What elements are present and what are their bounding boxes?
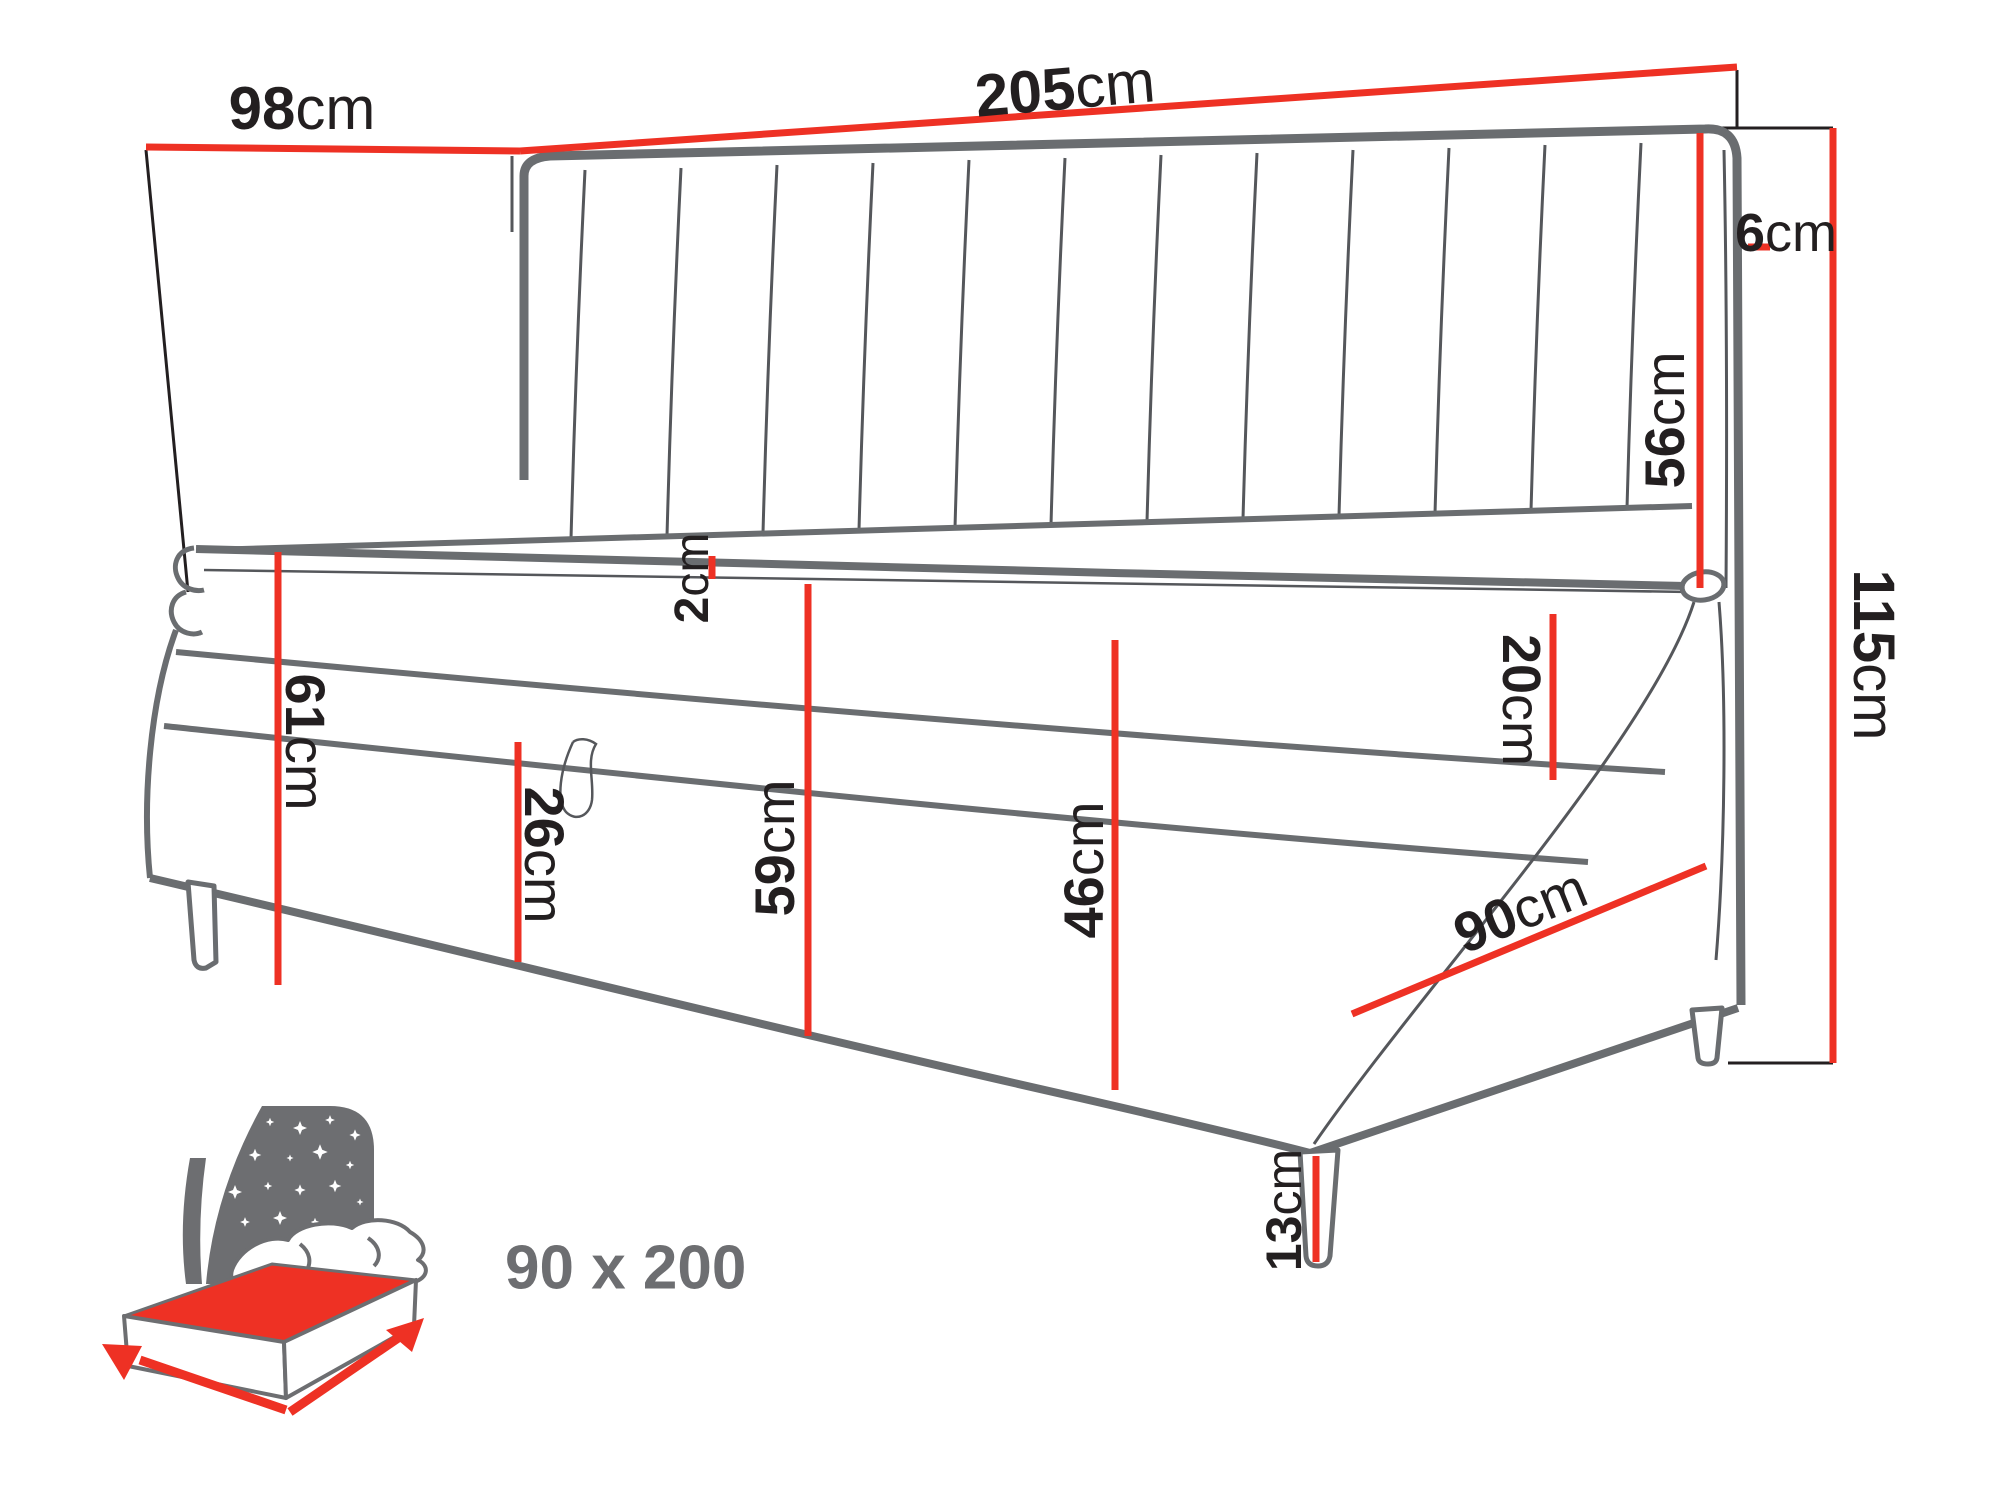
wall-edge-line <box>146 150 188 592</box>
dim-13-label: 13cm <box>1256 1149 1312 1271</box>
left-piping-bump-1 <box>175 548 204 591</box>
side-bottom-edge <box>1310 1008 1738 1153</box>
left-piping-bump-2 <box>171 592 202 634</box>
dim-20-label: 20cm <box>1491 634 1551 766</box>
rear-right-leg <box>1692 1008 1722 1064</box>
headboard-panel-seams <box>571 143 1641 539</box>
dim-98-line <box>146 147 520 151</box>
dim-56-label: 56cm <box>1633 352 1696 489</box>
dim-6-label: 6cm <box>1735 203 1837 263</box>
headboard-inner-edge <box>1724 150 1727 588</box>
bed-dimension-diagram: 98cm 205cm 6cm 56cm 115cm 2cm 61cm 26cm … <box>0 0 2000 1500</box>
left-end-edge <box>147 630 176 878</box>
dim-98-label: 98cm <box>229 75 376 142</box>
storage-lid-seam <box>164 726 1588 862</box>
size-caption: 90 x 200 <box>505 1234 746 1303</box>
seat-back-line <box>208 506 1692 550</box>
front-left-leg <box>188 882 216 968</box>
dimension-lines <box>146 67 1833 1262</box>
dim-59-label: 59cm <box>743 780 806 917</box>
dim-2-label: 2cm <box>666 533 719 624</box>
night-sky-sliver <box>183 1158 206 1284</box>
bed-size-icon: 90 x 200 <box>102 1106 746 1412</box>
dim-46-label: 46cm <box>1052 802 1115 939</box>
dim-90-label: 90cm <box>1445 855 1596 965</box>
mattress-bottom-seam <box>176 652 1665 772</box>
dimension-labels: 98cm 205cm 6cm 56cm 115cm 2cm 61cm 26cm … <box>229 47 1907 1271</box>
dim-205-label: 205cm <box>972 47 1157 129</box>
dim-26-label: 26cm <box>514 787 577 924</box>
dim-61-label: 61cm <box>275 674 338 811</box>
mattress-right-silhouette <box>1716 602 1724 960</box>
dim-115-label: 115cm <box>1842 570 1907 741</box>
diagram-canvas: 98cm 205cm 6cm 56cm 115cm 2cm 61cm 26cm … <box>0 0 2000 1500</box>
